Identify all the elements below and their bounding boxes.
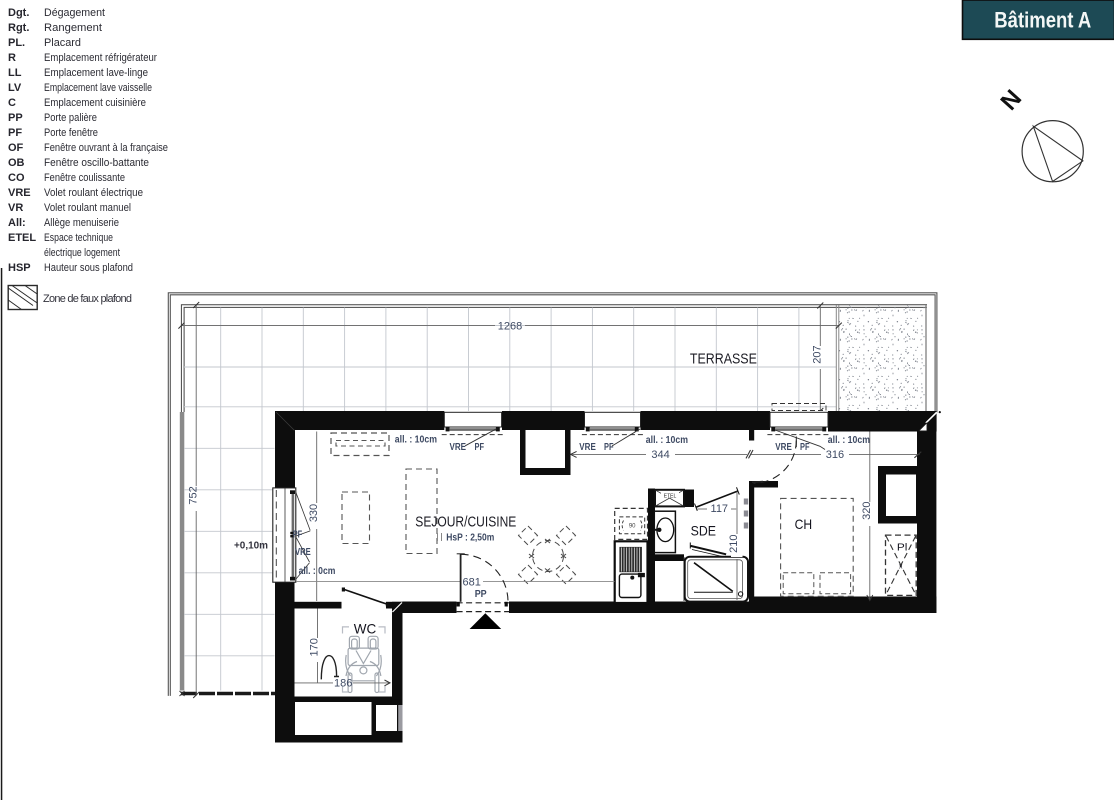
svg-text:344: 344 (651, 449, 669, 461)
svg-text:Bâtiment A: Bâtiment A (994, 7, 1091, 32)
svg-text:Emplacement lave vaisselle: Emplacement lave vaisselle (44, 82, 152, 94)
svg-text:1268: 1268 (498, 321, 522, 333)
svg-text:Rgt.: Rgt. (8, 22, 29, 34)
svg-text:OB: OB (8, 157, 25, 169)
svg-text:186: 186 (334, 678, 352, 690)
svg-text:752: 752 (188, 486, 200, 504)
svg-text:VRE: VRE (775, 442, 792, 453)
svg-text:Fenêtre coulissante: Fenêtre coulissante (44, 172, 125, 184)
svg-text:681: 681 (463, 576, 481, 588)
svg-text:Espace technique: Espace technique (44, 232, 113, 244)
svg-text:PF: PF (8, 127, 22, 139)
svg-text:TERRASSE: TERRASSE (690, 351, 757, 368)
svg-text:VRE: VRE (295, 547, 311, 558)
svg-text:316: 316 (826, 449, 844, 461)
svg-text:Dégagement: Dégagement (44, 7, 105, 19)
svg-text:ETEL: ETEL (8, 232, 36, 244)
svg-text:PF: PF (800, 442, 810, 453)
svg-text:+0,10m: +0,10m (234, 540, 268, 552)
svg-text:SDE: SDE (691, 522, 716, 538)
svg-text:Fenêtre ouvrant à la française: Fenêtre ouvrant à la française (44, 142, 168, 154)
svg-text:CO: CO (8, 172, 25, 184)
svg-text:all. : 10cm: all. : 10cm (646, 435, 688, 446)
svg-text:PF: PF (475, 442, 485, 453)
svg-text:LL: LL (8, 67, 22, 79)
svg-text:HSP: HSP (8, 262, 31, 274)
svg-text:PF: PF (604, 442, 614, 453)
svg-text:PF: PF (293, 529, 303, 540)
svg-text:VRE: VRE (579, 442, 596, 453)
svg-text:Emplacement cuisinière: Emplacement cuisinière (44, 97, 146, 109)
svg-text:ETEL: ETEL (664, 493, 677, 499)
svg-text:Dgt.: Dgt. (8, 7, 29, 19)
svg-text:Emplacement réfrigérateur: Emplacement réfrigérateur (44, 52, 157, 64)
svg-text:Allège menuiserie: Allège menuiserie (44, 217, 119, 229)
svg-text:N: N (996, 85, 1028, 116)
svg-text:90: 90 (629, 524, 636, 530)
svg-text:all. : 10cm: all. : 10cm (828, 435, 870, 446)
svg-text:VRE: VRE (8, 187, 31, 199)
svg-text:Emplacement lave-linge: Emplacement lave-linge (44, 67, 148, 79)
svg-text:117: 117 (711, 503, 729, 515)
svg-text:VR: VR (8, 202, 23, 214)
svg-text:330: 330 (308, 504, 320, 522)
svg-text:CH: CH (795, 516, 813, 532)
svg-text:Porte fenêtre: Porte fenêtre (44, 127, 98, 139)
svg-text:PP: PP (475, 588, 487, 600)
svg-text:R: R (8, 52, 16, 64)
svg-text:OF: OF (8, 142, 24, 154)
svg-text:Rangement: Rangement (44, 22, 102, 34)
svg-text:210: 210 (728, 535, 740, 553)
svg-text:Placard: Placard (44, 37, 81, 49)
svg-text:320: 320 (861, 502, 873, 520)
svg-text:SEJOUR/CUISINE: SEJOUR/CUISINE (415, 514, 516, 531)
svg-text:Zone de faux plafond: Zone de faux plafond (43, 293, 132, 305)
svg-text:Hauteur sous plafond: Hauteur sous plafond (44, 262, 133, 274)
svg-text:LV: LV (8, 82, 22, 94)
svg-text:VRE: VRE (450, 442, 467, 453)
svg-text:C: C (8, 97, 16, 109)
svg-text:HsP : 2,50m: HsP : 2,50m (446, 532, 494, 544)
svg-text:All:: All: (8, 217, 26, 229)
svg-text:PP: PP (8, 112, 23, 124)
svg-text:Pl: Pl (897, 542, 908, 554)
svg-text:Porte palière: Porte palière (44, 112, 97, 124)
svg-text:Fenêtre oscillo-battante: Fenêtre oscillo-battante (44, 157, 149, 169)
svg-text:électrique logement: électrique logement (44, 247, 120, 259)
svg-text:Volet roulant manuel: Volet roulant manuel (44, 202, 131, 214)
svg-text:170: 170 (309, 638, 321, 656)
svg-text:207: 207 (812, 345, 824, 363)
svg-text:x: x (899, 564, 903, 571)
svg-text:PL.: PL. (8, 37, 25, 49)
svg-text:Volet roulant électrique: Volet roulant électrique (44, 187, 143, 199)
svg-text:WC: WC (354, 620, 377, 636)
svg-text:all. : 10cm: all. : 10cm (395, 435, 437, 446)
